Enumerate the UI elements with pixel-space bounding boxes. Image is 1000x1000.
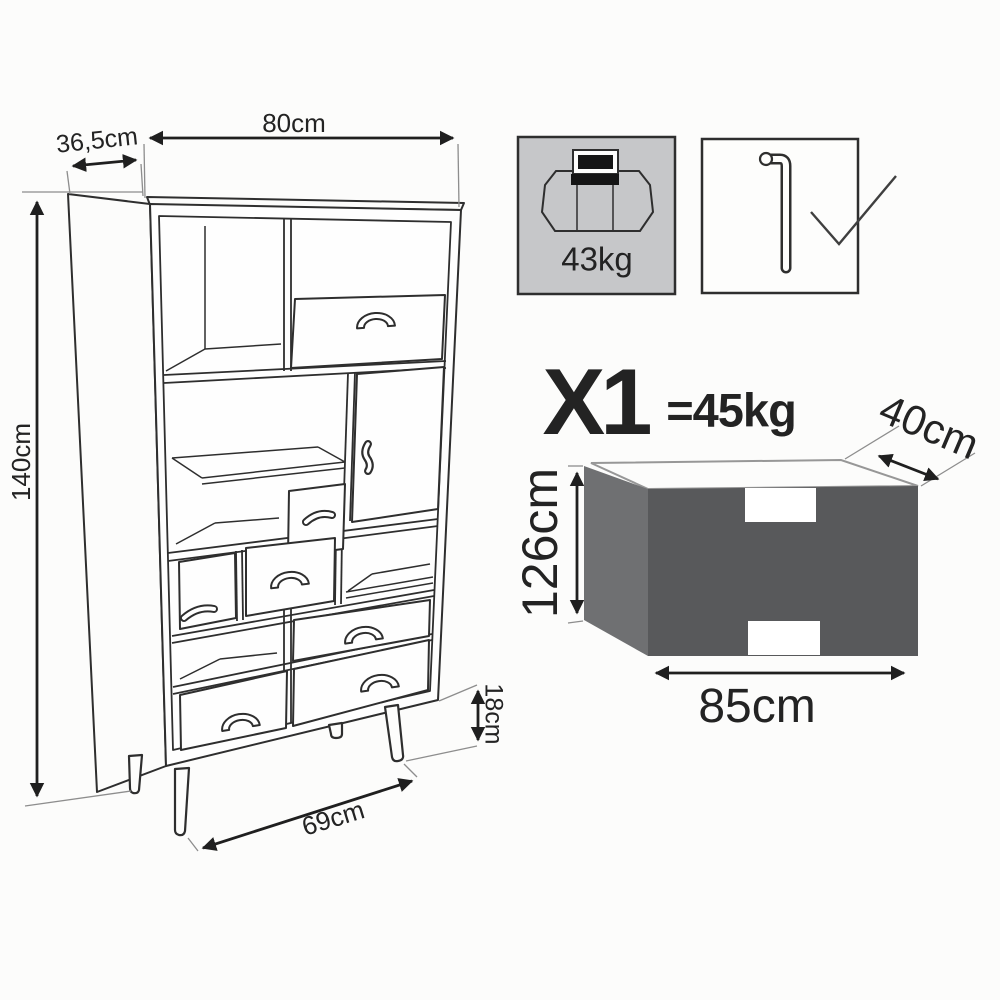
- package-width-label: 85cm: [698, 683, 815, 731]
- leg-back-right: [329, 723, 342, 738]
- drawer-top-right: [291, 295, 445, 368]
- cabinet-width-label: 80cm: [262, 110, 326, 136]
- tools-box: [702, 139, 896, 293]
- package-top-face: [591, 460, 918, 489]
- diagram-canvas: [0, 0, 1000, 1000]
- leg-front-right: [385, 705, 403, 761]
- package-height-label: 126cm: [515, 468, 565, 618]
- leg-front-left: [175, 768, 189, 835]
- package-side-face: [584, 466, 648, 656]
- package-quantity-label: X1: [543, 355, 648, 449]
- arrow-depth-36-5: [73, 160, 136, 166]
- cabinet-height-label: 140cm: [8, 423, 34, 501]
- package-handle-top: [745, 488, 816, 522]
- leg-back-left: [129, 755, 142, 793]
- cabinet-drawing: [68, 194, 464, 835]
- package-handle-bottom: [748, 621, 820, 655]
- max-load-value: 43kg: [561, 243, 633, 276]
- package-weight-label: =45kg: [666, 387, 796, 434]
- cabinet-leg-height-label: 18cm: [481, 683, 506, 744]
- diagram-page: 80cm 36,5cm 140cm 18cm 69cm 43kg X1 =45k…: [0, 0, 1000, 1000]
- package-drawing: [584, 460, 918, 656]
